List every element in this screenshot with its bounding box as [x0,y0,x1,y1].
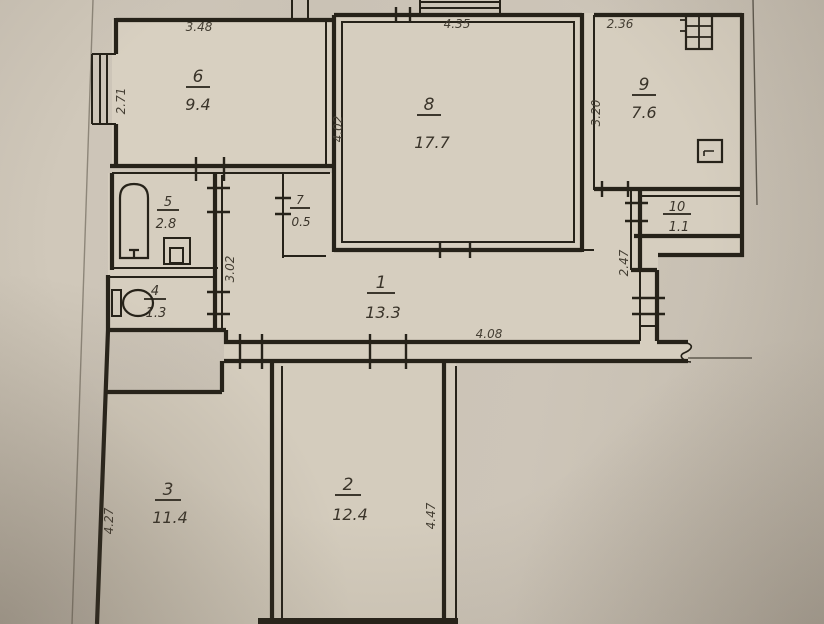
room-8-number: 8 [424,95,435,115]
dim-room9-left: 3.20 [589,99,603,126]
room-9-number: 9 [639,75,650,95]
dim-corridor-bottom: 4.08 [476,327,503,341]
room-5-area: 2.8 [156,217,177,232]
room-6-number: 6 [193,67,204,87]
room-4-number: 4 [151,284,159,299]
room-2-area: 12.4 [332,505,368,524]
dim-room2-right: 4.47 [424,502,438,529]
room-fill-lower [97,361,456,624]
room-fill-upper-left [112,20,332,165]
room-7-number: 7 [296,193,304,207]
room-9-area: 7.6 [631,103,656,122]
dim-hall-left: 3.02 [223,256,237,283]
room-7-area: 0.5 [291,215,310,229]
room-6-area: 9.4 [185,95,210,114]
room-10-number: 10 [669,200,686,215]
room-2-number: 2 [343,475,354,495]
dim-room9-top: 2.36 [607,17,634,31]
room-3-number: 3 [163,480,174,500]
room-5-number: 5 [164,195,172,210]
room-10-area: 1.1 [669,220,690,235]
dim-room3-left: 4.27 [102,507,116,534]
dim-room6-left: 2.71 [114,88,128,115]
dim-room8-top: 4.35 [444,17,471,31]
dim-room6-top: 3.48 [186,20,213,34]
room-3-area: 11.4 [152,508,188,527]
room-8-area: 17.7 [414,133,450,152]
paper-edge-strip [0,0,93,624]
floor-plan-drawing: 6 9.4 8 17.7 9 7.6 10 1.1 1 13.3 5 2.8 4… [0,0,824,624]
room-1-number: 1 [376,273,387,293]
floor-plan-photo: 6 9.4 8 17.7 9 7.6 10 1.1 1 13.3 5 2.8 4… [0,0,824,624]
dim-hall-right: 2.47 [617,249,631,276]
room-4-area: 1.3 [146,306,167,321]
room-1-area: 13.3 [365,303,401,322]
dim-room8-left: 4.02 [331,116,345,143]
